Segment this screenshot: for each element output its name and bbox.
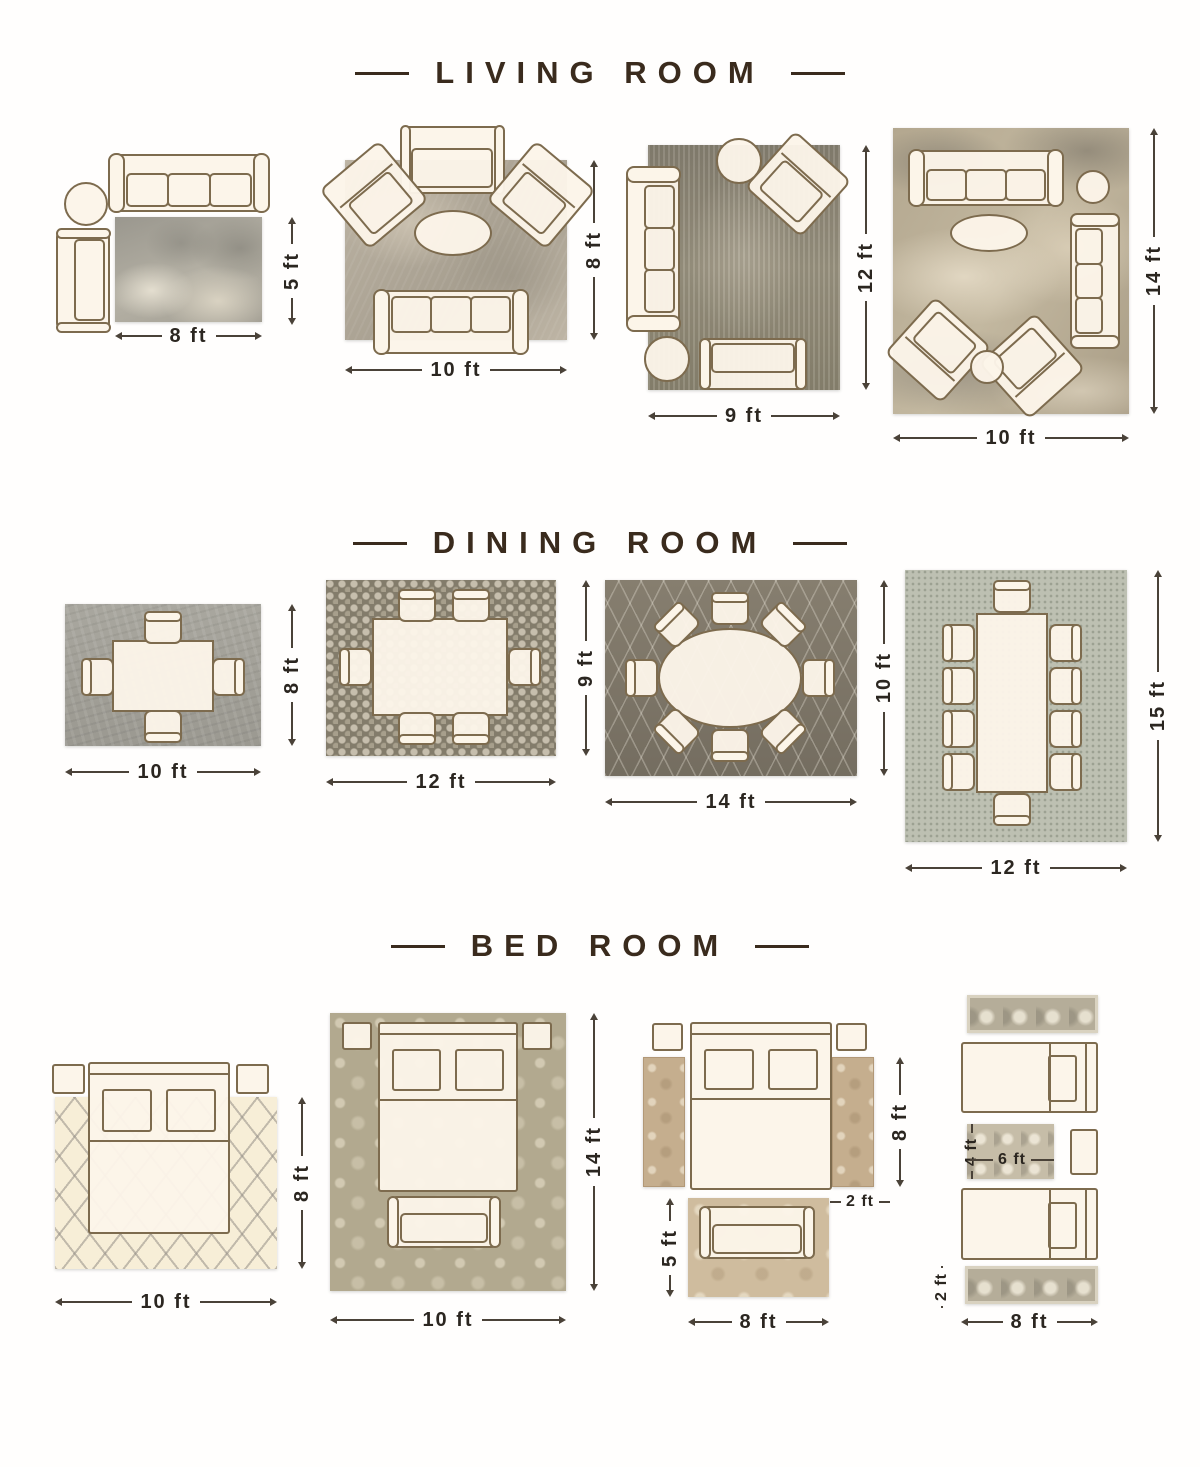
dimension-height: 12 ft (854, 145, 878, 390)
dimension-label: 8 ft (732, 1312, 786, 1332)
dining-chair (508, 648, 538, 686)
dimension-label: 5 ft (660, 1221, 680, 1275)
title-dash (791, 72, 845, 75)
dining-chair (945, 710, 975, 748)
dining-chair (1049, 710, 1079, 748)
dimension-height: 5 ft (280, 217, 304, 325)
dining-chair (711, 729, 749, 759)
nightstand (342, 1022, 372, 1050)
living-layout-8x10: 10 ft 8 ft (330, 118, 620, 380)
dimension-width: 12 ft (905, 856, 1127, 880)
dimension-foot-rug-height: 5 ft (658, 1198, 682, 1297)
dimension-label: 14 ft (1144, 237, 1164, 304)
nightstand (836, 1023, 867, 1051)
dining-chair (945, 667, 975, 705)
pillow (102, 1089, 152, 1132)
dimension-height: 8 ft (290, 1097, 314, 1269)
title-dash (755, 945, 809, 948)
side-table (970, 350, 1004, 384)
runner-rug (643, 1057, 685, 1187)
dining-layout-8x10: 10 ft 8 ft (40, 588, 320, 790)
pillow (704, 1049, 754, 1091)
dining-chair (398, 712, 436, 742)
dining-layout-10x14: 14 ft 10 ft (590, 568, 890, 810)
sofa (626, 168, 680, 330)
bedroom-layout-8x10: 10 ft 8 ft (30, 1040, 322, 1322)
nightstand (236, 1064, 269, 1094)
side-table (1076, 170, 1110, 204)
pillow (455, 1049, 504, 1091)
bedroom-layout-runners: 8 ft 2 ft 5 ft 8 ft (620, 1000, 916, 1332)
dining-chair (993, 583, 1031, 613)
bench (700, 1206, 814, 1259)
dimension-width: 10 ft (55, 1290, 277, 1314)
dimension-label: 8 ft (162, 326, 216, 346)
twin-bed (961, 1188, 1098, 1260)
dimension-width: 9 ft (648, 404, 840, 428)
dimension-width: 10 ft (330, 1308, 566, 1332)
sofa (910, 150, 1062, 206)
pillow (1048, 1202, 1077, 1250)
section-title-bed-room: BED ROOM (0, 928, 1200, 964)
dining-chair (452, 592, 490, 622)
dimension-height: 8 ft (582, 160, 606, 340)
coffee-table (414, 210, 492, 256)
dimension-label: 2 ft (841, 1194, 879, 1210)
loveseat (700, 338, 806, 390)
coffee-table (950, 214, 1028, 252)
dimension-label: 12 ft (856, 234, 876, 301)
dimension-center-rug-width: 6 ft (970, 1148, 1054, 1172)
section-title-text: DINING ROOM (433, 525, 768, 561)
dining-layout-9x12: 12 ft 9 ft (312, 568, 600, 800)
pillow (392, 1049, 441, 1091)
dimension-label: 12 ft (982, 858, 1049, 878)
side-table (644, 336, 690, 382)
nightstand (1070, 1129, 1098, 1175)
twin-bed (961, 1042, 1098, 1113)
dimension-width: 8 ft (961, 1310, 1098, 1334)
dimension-height: 14 ft (582, 1013, 606, 1291)
dimension-runner-height: 2 ft (930, 1266, 954, 1308)
section-title-living-room: LIVING ROOM (0, 55, 1200, 91)
dimension-width: 14 ft (605, 790, 857, 814)
sofa (1070, 214, 1120, 348)
dimension-label: 8 ft (282, 648, 302, 702)
dimension-label: 10 ft (129, 762, 196, 782)
title-dash (793, 542, 847, 545)
runner-rug (832, 1057, 874, 1187)
dimension-height: 8 ft (280, 604, 304, 746)
dining-table (976, 613, 1048, 793)
dining-chair (212, 658, 242, 696)
bedroom-layout-twin-runners: 4 ft 6 ft 2 ft 8 ft (908, 980, 1200, 1332)
dimension-width: 8 ft (688, 1310, 829, 1334)
dimension-label: 2 ft (934, 1268, 950, 1306)
dimension-label: 10 ft (977, 428, 1044, 448)
dining-chair (144, 614, 182, 644)
dimension-label: 8 ft (584, 223, 604, 277)
dimension-runner-width: 2 ft (830, 1190, 890, 1214)
dimension-label: 12 ft (407, 772, 474, 792)
living-layout-9x12: 9 ft 12 ft (620, 128, 890, 430)
pillow (768, 1049, 818, 1091)
bed (690, 1022, 832, 1190)
dining-chair (342, 648, 372, 686)
dimension-label: 6 ft (993, 1152, 1031, 1168)
dining-chair (1049, 667, 1079, 705)
bed (88, 1062, 230, 1234)
bench (388, 1196, 500, 1248)
dining-chair (398, 592, 436, 622)
living-layout-10x14: 10 ft 14 ft (888, 112, 1200, 452)
bed (378, 1022, 518, 1192)
rug-size-guide: LIVING ROOM 8 ft 5 ft (0, 0, 1200, 1467)
dimension-label: 14 ft (584, 1118, 604, 1185)
section-title-text: LIVING ROOM (435, 55, 764, 91)
dining-chair (993, 793, 1031, 823)
dimension-label: 10 ft (422, 360, 489, 380)
dining-chair (945, 624, 975, 662)
title-dash (355, 72, 409, 75)
title-dash (391, 945, 445, 948)
dimension-width: 10 ft (345, 358, 567, 382)
dining-chair (452, 712, 490, 742)
dimension-label: 10 ft (132, 1292, 199, 1312)
dimension-label: 10 ft (414, 1310, 481, 1330)
dining-table (372, 618, 508, 716)
living-layout-5x8: 8 ft 5 ft (40, 140, 320, 370)
dining-layout-12x15: 12 ft 15 ft (888, 558, 1188, 892)
sofa (375, 290, 527, 354)
nightstand (52, 1064, 85, 1094)
dimension-width: 8 ft (115, 324, 262, 348)
dimension-width: 10 ft (65, 760, 261, 784)
nightstand (652, 1023, 683, 1051)
dining-chair (802, 659, 832, 697)
runner-rug (967, 995, 1098, 1033)
dimension-label: 8 ft (1003, 1312, 1057, 1332)
dining-chair (84, 658, 114, 696)
section-title-dining-room: DINING ROOM (0, 525, 1200, 561)
dimension-label: 5 ft (282, 244, 302, 298)
dining-chair (1049, 624, 1079, 662)
armchair (56, 228, 110, 332)
dining-chair (628, 659, 658, 697)
dining-chair (144, 710, 182, 740)
dining-chair (711, 595, 749, 625)
dimension-width: 12 ft (326, 770, 556, 794)
dimension-label: 9 ft (717, 406, 771, 426)
dimension-width: 10 ft (893, 426, 1129, 450)
pillow (166, 1089, 216, 1132)
dimension-height: 15 ft (1146, 570, 1170, 842)
sofa (110, 154, 268, 212)
dining-table (112, 640, 214, 712)
dimension-label: 8 ft (292, 1156, 312, 1210)
side-table (64, 182, 108, 226)
nightstand (522, 1022, 552, 1050)
runner-rug (965, 1266, 1098, 1304)
dimension-label: 15 ft (1148, 672, 1168, 739)
dimension-height: 14 ft (1142, 128, 1166, 414)
section-title-text: BED ROOM (471, 928, 730, 964)
dimension-label: 8 ft (890, 1095, 910, 1149)
pillow (1048, 1055, 1077, 1102)
dining-chair (1049, 753, 1079, 791)
rug (115, 217, 262, 322)
dimension-label: 14 ft (697, 792, 764, 812)
title-dash (353, 542, 407, 545)
dining-chair (945, 753, 975, 791)
bedroom-layout-10x14: 10 ft 14 ft (320, 1000, 612, 1342)
